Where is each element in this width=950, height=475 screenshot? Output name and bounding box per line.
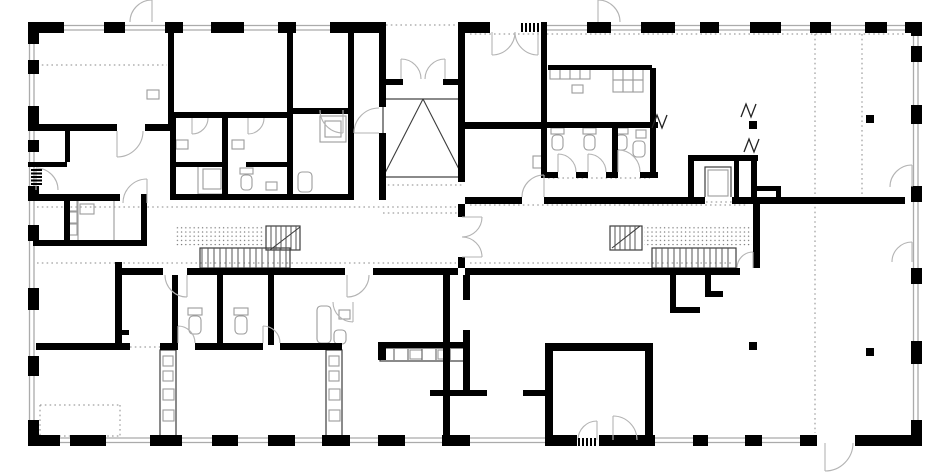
facade-pier (693, 435, 708, 446)
wall (688, 161, 694, 202)
wall (463, 330, 470, 392)
wall (287, 30, 293, 112)
facade-pier (268, 435, 295, 446)
facade-pier (587, 22, 611, 33)
wall (443, 79, 465, 85)
wall (172, 275, 178, 345)
facade-pier (750, 22, 781, 33)
wall (606, 172, 618, 178)
wall (541, 22, 547, 122)
stair-landing-dot-hatch (175, 226, 264, 247)
wall (465, 122, 547, 129)
facade-pier (911, 105, 922, 124)
wall (246, 162, 292, 167)
facade-pier (28, 140, 39, 152)
wall (379, 133, 386, 200)
wall (65, 130, 70, 162)
wall (28, 194, 120, 201)
wall (378, 342, 465, 348)
wall (458, 204, 465, 217)
wall (458, 257, 465, 268)
wall (170, 194, 354, 200)
wall (545, 343, 553, 437)
wall (458, 22, 465, 182)
facade-pier (28, 60, 39, 74)
floor-plan-page (0, 0, 950, 475)
facade-pier (700, 22, 719, 33)
facade-pier (150, 435, 182, 446)
wall (545, 343, 653, 351)
facade-pier (28, 356, 39, 376)
facade-pier (104, 22, 125, 33)
wall (379, 79, 403, 85)
facade-pier (211, 22, 244, 33)
wall (465, 268, 740, 275)
wall (670, 307, 700, 313)
column (866, 115, 874, 123)
facade-pier (911, 46, 922, 62)
facade-pier (865, 22, 887, 33)
wall (430, 390, 487, 396)
facade-pier (911, 186, 922, 202)
wall (751, 161, 757, 202)
wall (705, 291, 723, 297)
wall (287, 112, 293, 200)
wall (541, 122, 547, 178)
column (866, 348, 874, 356)
facade-pier (545, 435, 577, 446)
wall (548, 65, 652, 70)
facade-pier (28, 186, 39, 198)
wall (28, 124, 117, 131)
wall (145, 124, 174, 131)
facade-pier (28, 106, 39, 124)
facade-pier (322, 435, 350, 446)
wall (268, 275, 274, 345)
wall (141, 194, 147, 246)
facade-pier (911, 420, 922, 446)
wall (443, 348, 450, 437)
wall (753, 204, 760, 268)
wall (379, 22, 386, 107)
wall (280, 343, 342, 350)
wall (373, 268, 458, 275)
floor-plan-canvas (0, 0, 950, 475)
wall (64, 240, 147, 246)
facade-pier (70, 435, 106, 446)
facade-pier (599, 435, 655, 446)
facade-pier (28, 288, 39, 310)
facade-pier (800, 435, 817, 446)
wall (64, 194, 70, 246)
wall (523, 390, 547, 396)
wall (217, 275, 223, 345)
facade-pier (28, 22, 39, 44)
wall (463, 275, 470, 300)
facade-pier (641, 22, 675, 33)
facade-pier (911, 268, 922, 284)
facade-pier (330, 22, 385, 33)
wall (612, 128, 618, 175)
wall (776, 186, 781, 202)
wall (195, 343, 263, 350)
facade-pier (911, 22, 922, 36)
wall (170, 112, 293, 118)
wall (187, 268, 345, 275)
facade-pier (28, 420, 39, 446)
wall (36, 343, 130, 350)
facade-opening (385, 20, 458, 35)
wall (348, 108, 354, 200)
wall (734, 161, 739, 202)
column (749, 121, 757, 129)
wall (222, 112, 228, 200)
wall (28, 162, 67, 167)
facade-pier (165, 22, 183, 33)
wall (117, 330, 129, 335)
wall (378, 347, 386, 360)
wall (120, 268, 163, 275)
wall-opening (522, 197, 544, 204)
wall (576, 172, 588, 178)
wall (541, 122, 658, 128)
wall (650, 68, 656, 178)
facade-pier (810, 22, 831, 33)
wall (645, 351, 653, 437)
facade-pier (278, 22, 296, 33)
stair-landing-dot-hatch (644, 225, 752, 247)
facade-pier (378, 435, 405, 446)
facade-pier (458, 22, 490, 33)
wall (170, 162, 228, 167)
wall (170, 118, 176, 200)
wall (443, 275, 450, 342)
facade-pier (28, 225, 39, 241)
column (749, 342, 757, 350)
facade-pier (212, 435, 238, 446)
facade-pier (442, 435, 470, 446)
facade-opening (817, 434, 855, 447)
facade-pier (911, 341, 922, 364)
wall-opening (705, 197, 732, 204)
facade-pier (745, 435, 762, 446)
wall (688, 155, 758, 161)
